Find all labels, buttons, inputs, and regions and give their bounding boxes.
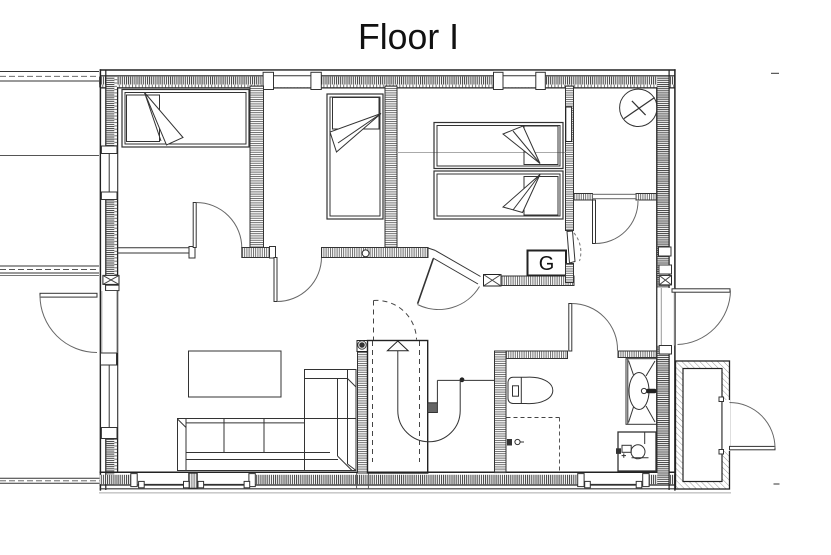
svg-text:G: G (539, 253, 555, 275)
svg-text:Floor I: Floor I (358, 16, 459, 57)
